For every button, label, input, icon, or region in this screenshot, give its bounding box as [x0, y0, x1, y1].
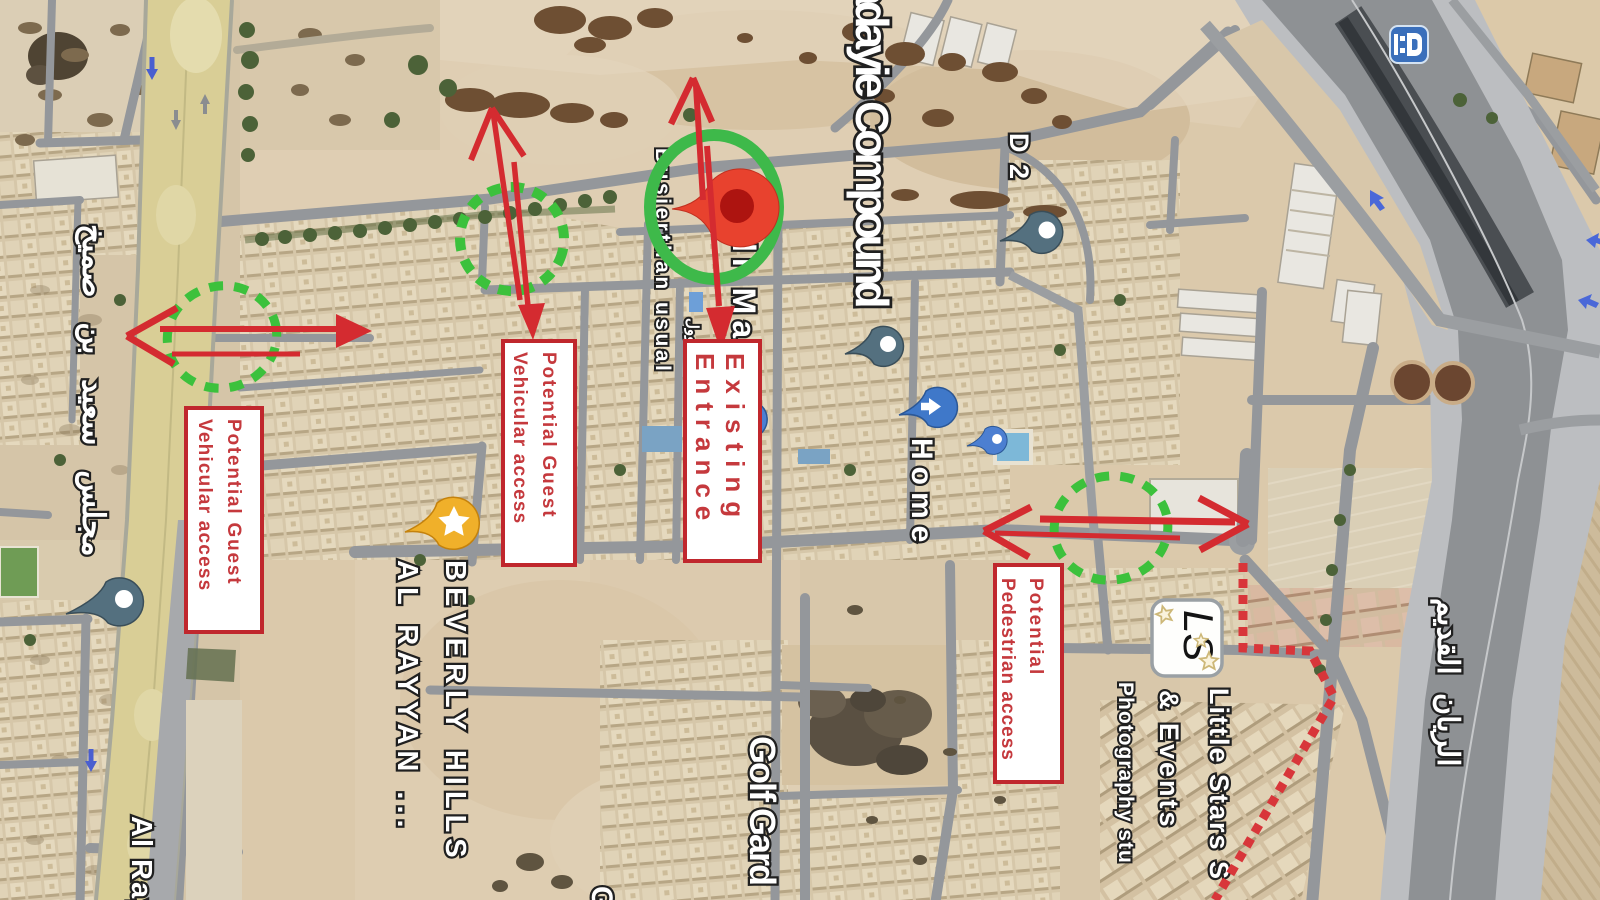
- svg-text:BEVERLY HILLS: BEVERLY HILLS: [439, 560, 471, 864]
- svg-text:Potential Guest: Potential Guest: [223, 419, 244, 585]
- svg-text:مجلس سعيد بن صميخ: مجلس سعيد بن صميخ: [74, 224, 111, 557]
- svg-text:Entrance: Entrance: [690, 353, 720, 528]
- svg-text:Potential: Potential: [1025, 578, 1046, 676]
- svg-text:Little Stars S: Little Stars S: [1204, 688, 1234, 881]
- svg-text:AL RAYYAN ...: AL RAYYAN ...: [391, 560, 423, 834]
- svg-text:الريان القديم: الريان القديم: [1430, 598, 1464, 767]
- svg-text:D 2: D 2: [1004, 133, 1034, 181]
- svg-text:Pedestrian access: Pedestrian access: [997, 578, 1018, 761]
- svg-text:adayie Compound: adayie Compound: [846, 0, 898, 307]
- svg-text:Home: Home: [905, 438, 938, 549]
- svg-text:& Events: & Events: [1154, 690, 1184, 830]
- svg-text:G: G: [585, 886, 618, 900]
- svg-text:Golf Gard: Golf Gard: [742, 736, 783, 884]
- svg-text:Al Rayy: Al Rayy: [125, 816, 157, 900]
- svg-text:Photography stu: Photography stu: [1114, 682, 1137, 864]
- svg-text:Existing: Existing: [720, 353, 750, 526]
- svg-text:Vehicular access: Vehicular access: [509, 352, 530, 524]
- svg-text:LS: LS: [1175, 610, 1222, 661]
- svg-text:Vehicular access: Vehicular access: [194, 419, 215, 591]
- svg-text:Potential Guest: Potential Guest: [538, 352, 559, 518]
